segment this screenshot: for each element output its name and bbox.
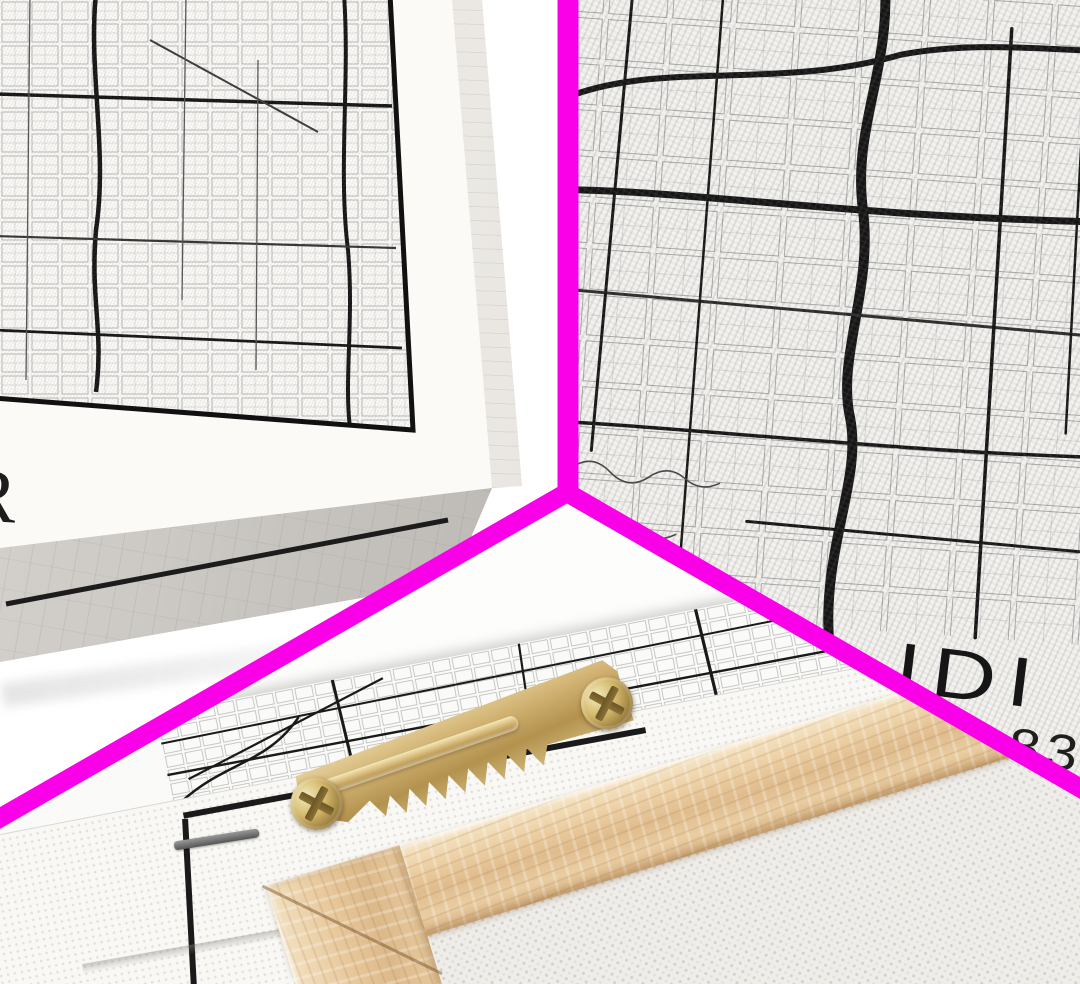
canvas-map-product-photo: R [0,0,1080,984]
map-border-frame [0,0,500,560]
canvas-front-face: R [0,0,500,560]
